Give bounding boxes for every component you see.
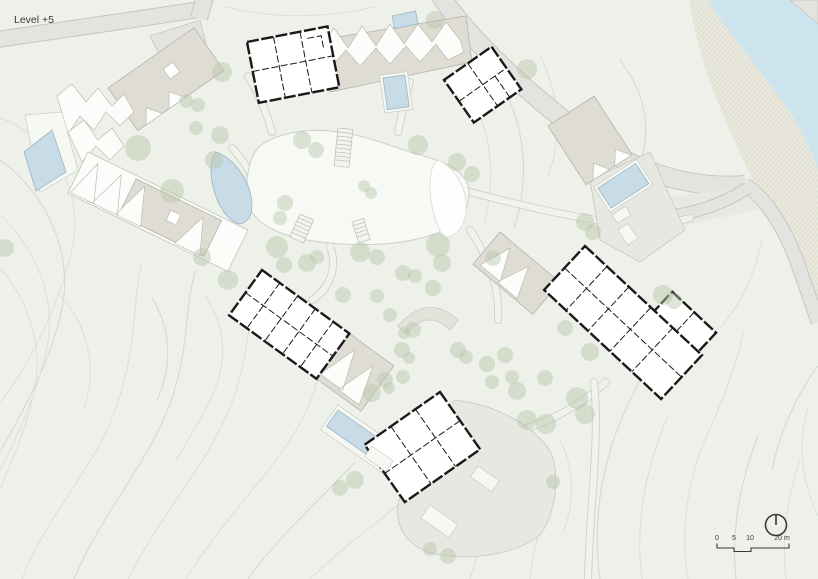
tree [585,224,601,240]
tree [403,352,415,364]
tree [398,327,410,339]
tree [350,242,370,262]
tree [125,135,151,161]
tree [537,370,553,386]
site-plan-drawing: Level +5 0 5 10 20 m [0,0,818,579]
tree [212,62,232,82]
tree [546,475,560,489]
tree [293,131,311,149]
tree [277,195,293,211]
tree [310,250,324,264]
tree [332,480,348,496]
floor-plan-top-left [247,26,339,103]
tree [211,126,229,144]
tree [273,211,287,225]
svg-text:0: 0 [715,535,719,542]
tree [335,287,351,303]
tree [426,233,450,257]
tree [383,308,397,322]
tree [205,151,223,169]
tree [536,414,556,434]
tree [459,350,473,364]
tree [423,542,437,556]
tree [517,59,537,79]
tree [426,11,444,29]
building-top-band [247,11,521,123]
tree [193,248,211,266]
tree [433,254,451,272]
tree [363,384,381,402]
tree [218,270,238,290]
tree [276,257,292,273]
tree [485,375,499,389]
tree [370,289,384,303]
tree [365,187,377,199]
tree [505,370,519,384]
tree [575,404,595,424]
tree [383,382,395,394]
tree [160,179,184,203]
tree [179,94,193,108]
tree [448,153,466,171]
tree [464,166,480,182]
tree [408,135,428,155]
tree [308,142,324,158]
tree [266,236,288,258]
tree [479,356,495,372]
tree [408,269,422,283]
tree [189,121,203,135]
tree [666,293,682,309]
north-arrow-icon [766,514,787,536]
tree [191,98,205,112]
scale-bar: 0 5 10 20 m [715,535,790,552]
svg-text:5: 5 [732,535,736,542]
tree [557,320,573,336]
tree [369,249,385,265]
tree [497,347,513,363]
site-plan-canvas: Level +5 0 5 10 20 m [0,0,818,579]
tree [517,410,537,430]
tree [508,382,526,400]
tree [396,370,410,384]
pool-top-band [383,75,409,110]
tree [581,343,599,361]
tree [425,280,441,296]
tree [0,239,14,257]
svg-text:10: 10 [746,535,754,542]
level-label: Level +5 [14,14,54,26]
tree [485,250,501,266]
tree [440,548,456,564]
tree [346,471,364,489]
